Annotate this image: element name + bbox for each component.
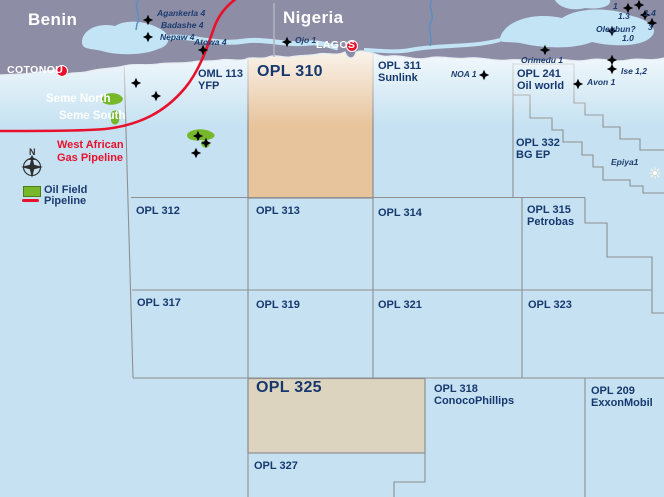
- block-label-opl318: OPL 318 ConocoPhillips: [434, 383, 514, 407]
- legend-pipeline-swatch: [22, 199, 39, 202]
- well-label-nepaw: Nepaw 4: [160, 33, 195, 42]
- field-label-seme-south: Seme South: [59, 110, 125, 122]
- block-label-opl327: OPL 327: [254, 460, 298, 472]
- country-label-nigeria: Nigeria: [283, 8, 343, 28]
- epiya-well-symbol: [650, 168, 661, 179]
- well-label-1: 1: [613, 2, 618, 11]
- block-label-opl325: OPL 325: [256, 379, 322, 396]
- map-canvas: [0, 0, 664, 497]
- well-label-avon: Avon 1: [587, 78, 615, 87]
- well-label-orimedu: Orimedu 1: [521, 56, 563, 65]
- compass-north-label: N: [29, 147, 36, 157]
- pipeline-label: West African Gas Pipeline: [57, 139, 124, 165]
- block-label-opl313: OPL 313: [256, 205, 300, 217]
- block-label-oml113: OML 113 YFP: [198, 68, 243, 92]
- city-label-cotonou: COTONOU: [7, 64, 63, 76]
- block-label-opl319: OPL 319: [256, 299, 300, 311]
- block-label-opl321: OPL 321: [378, 299, 422, 311]
- offshore-licence-map: Benin Nigeria COTONOU LAGOS Seme North S…: [0, 0, 664, 497]
- block-label-opl311: OPL 311 Sunlink: [378, 60, 421, 84]
- block-label-opl209: OPL 209 ExxonMobil: [591, 385, 653, 409]
- legend-oil-field-swatch: [23, 186, 41, 197]
- block-label-opl315: OPL 315 Petrobas: [527, 204, 574, 228]
- well-label-3: 3: [648, 23, 653, 32]
- well-label-agankerla: Agankerla 4: [157, 9, 205, 18]
- well-label-noa: NOA 1: [451, 70, 477, 79]
- block-label-opl332: OPL 332 BG EP: [516, 137, 560, 161]
- block-label-opl310: OPL 310: [257, 63, 323, 80]
- well-label-atowa: Atowa 4: [194, 38, 227, 47]
- well-label-1-4: 1.4: [644, 9, 656, 18]
- well-label-badashe: Badashe 4: [161, 21, 204, 30]
- city-label-lagos: LAGOS: [316, 39, 355, 51]
- block-label-opl241: OPL 241 Oil world: [517, 68, 564, 92]
- block-label-opl314: OPL 314: [378, 207, 422, 219]
- block-label-opl317: OPL 317: [137, 297, 181, 309]
- well-label-epiya: Epiya1: [611, 158, 638, 167]
- well-label-olegbun-num: 1.0: [622, 34, 634, 43]
- well-label-1-3: 1.3: [618, 12, 630, 21]
- block-label-opl312: OPL 312: [136, 205, 180, 217]
- field-label-seme-north: Seme North: [46, 93, 111, 105]
- country-label-benin: Benin: [28, 10, 77, 30]
- well-label-ojo: Ojo 1: [295, 36, 316, 45]
- well-label-ise: Ise 1,2: [621, 67, 647, 76]
- legend-pipeline-label: Pipeline: [44, 195, 86, 207]
- block-label-opl323: OPL 323: [528, 299, 572, 311]
